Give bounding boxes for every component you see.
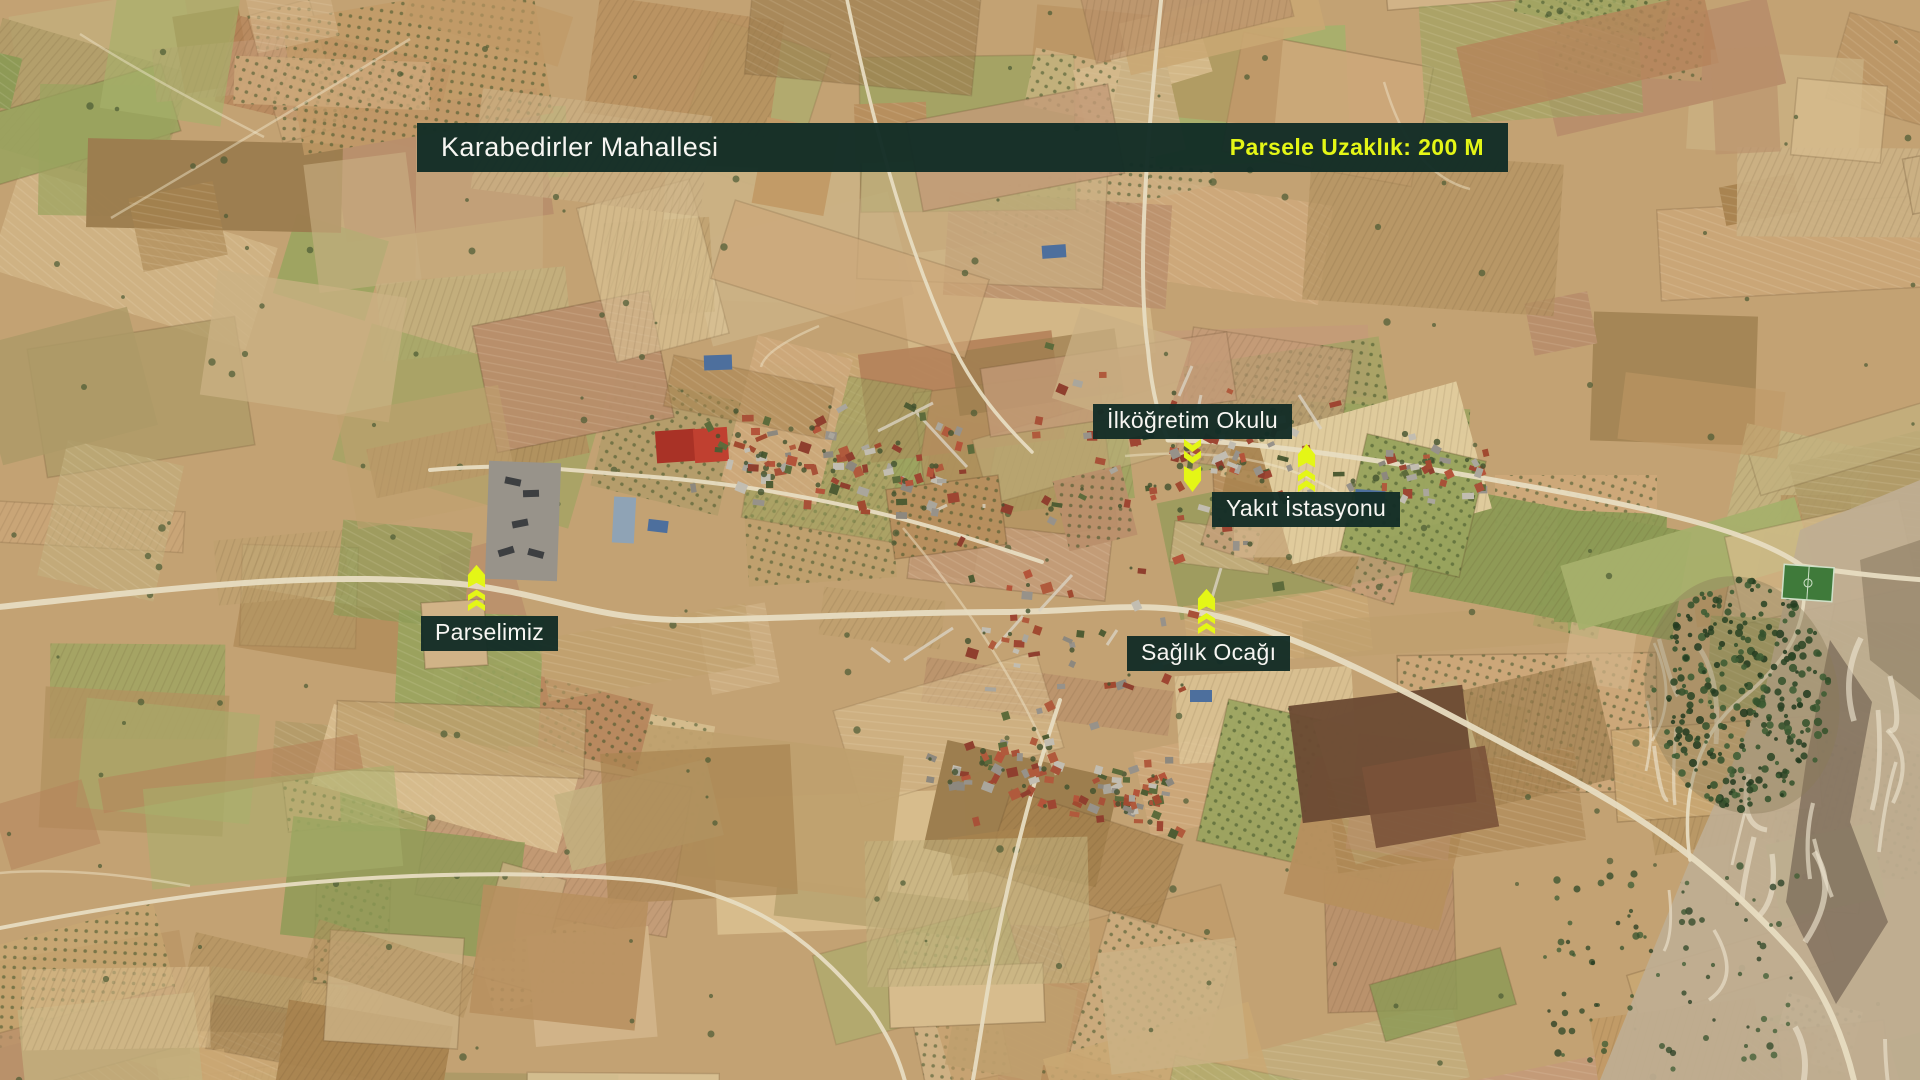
map-label-text: Parselimiz — [435, 619, 544, 645]
neighborhood-title: Karabedirler Mahallesi — [441, 132, 718, 163]
location-marker-up-icon — [467, 564, 486, 611]
map-label-text: İlköğretim Okulu — [1107, 407, 1278, 433]
parcel-distance-label: Parsele Uzaklık: 200 M — [1230, 134, 1484, 161]
map-label-ilkogretim-okulu: İlköğretim Okulu — [1093, 404, 1292, 439]
map-label-text: Sağlık Ocağı — [1141, 639, 1276, 665]
location-marker-down-icon — [1183, 439, 1202, 493]
header-bar: Karabedirler Mahallesi Parsele Uzaklık: … — [417, 123, 1508, 172]
aerial-map-view: Karabedirler Mahallesi Parsele Uzaklık: … — [0, 0, 1920, 1080]
location-marker-up-icon — [1297, 443, 1316, 492]
map-label-yakit-istasyonu: Yakıt İstasyonu — [1212, 492, 1400, 527]
map-label-parselimiz: Parselimiz — [421, 616, 558, 651]
location-marker-up-icon — [1197, 588, 1216, 634]
map-label-text: Yakıt İstasyonu — [1226, 495, 1386, 521]
map-label-saglik-ocagi: Sağlık Ocağı — [1127, 636, 1290, 671]
